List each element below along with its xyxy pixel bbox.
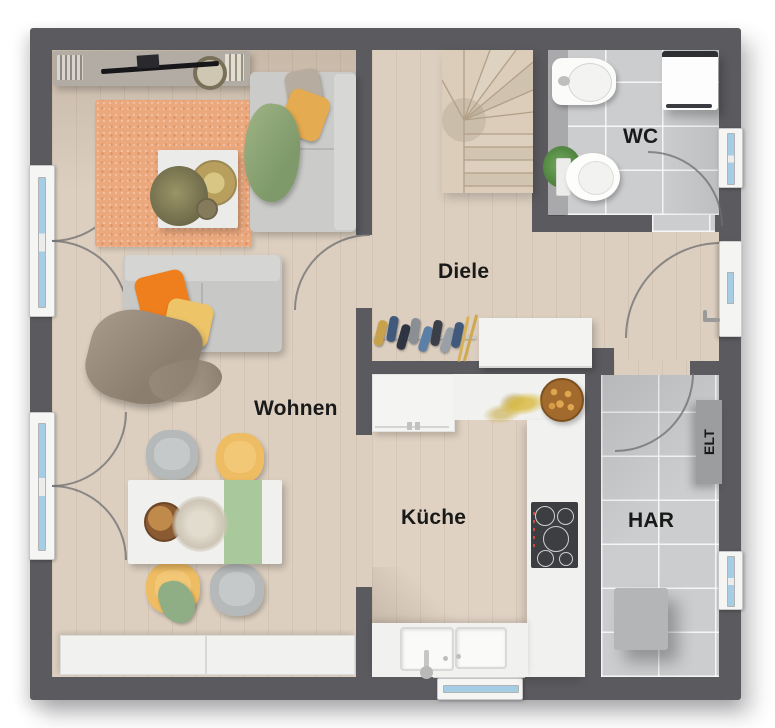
- toilet: [566, 153, 620, 201]
- door-glass: [727, 272, 734, 304]
- passage-wohnen-kueche: [356, 435, 372, 587]
- vase: [196, 198, 218, 220]
- sofa-backrest: [334, 74, 356, 230]
- room-label-diele: Diele: [438, 260, 489, 284]
- fruit-bowl: [540, 378, 584, 422]
- wall-stub: [592, 348, 614, 363]
- burner: [535, 506, 555, 526]
- window-wc: [718, 128, 743, 188]
- books: [225, 54, 244, 81]
- wardrobe: [479, 318, 592, 368]
- sideboard-top: [53, 51, 250, 86]
- sink-basin: [568, 63, 612, 102]
- chair-pad: [219, 572, 256, 605]
- dining-table: [128, 480, 282, 564]
- sink-knob: [443, 656, 448, 661]
- window-glass: [443, 685, 519, 693]
- cabinet-handle-line: [375, 426, 449, 428]
- staircase: [442, 50, 533, 193]
- cooktop-controls: [533, 512, 535, 552]
- entrance-door: [719, 241, 742, 337]
- chair-pad: [154, 438, 189, 470]
- window-har: [718, 551, 743, 610]
- coffee-table: [158, 150, 238, 228]
- window-glass: [38, 423, 46, 551]
- books: [57, 55, 83, 80]
- room-label-har: HAR: [628, 509, 674, 533]
- table-runner-green: [224, 480, 262, 564]
- window-glass: [727, 133, 735, 185]
- dining-chair-gray: [146, 430, 198, 480]
- sideboard-divider: [205, 636, 207, 674]
- cabinet-handle: [415, 422, 420, 430]
- elt-cabinet: ELT: [696, 400, 722, 484]
- room-label-elt: ELT: [701, 429, 717, 455]
- faucet: [558, 76, 570, 86]
- dried-flowers: [172, 496, 228, 552]
- burner: [537, 550, 554, 567]
- dining-chair-yellow: [216, 433, 264, 483]
- burner: [557, 508, 574, 525]
- sofa-main: [250, 72, 356, 232]
- faucet-base: [420, 666, 433, 679]
- room-label-kueche: Küche: [401, 506, 466, 530]
- kitchen-cabinet: [372, 374, 455, 432]
- sideboard-bottom: [60, 635, 355, 675]
- burner: [559, 552, 573, 566]
- sink-knob: [456, 654, 461, 659]
- door-handle: [703, 310, 707, 322]
- dining-chair-gray: [210, 564, 264, 616]
- sink-basin-right: [455, 627, 507, 669]
- washing-machine: [614, 588, 668, 650]
- window-glass: [38, 177, 46, 308]
- window-kueche: [437, 678, 523, 700]
- floorplan-canvas: ELT Wohnen Diele WC Küche HAR: [0, 0, 775, 728]
- toilet-bowl: [578, 161, 614, 195]
- sink: [552, 58, 616, 105]
- cooktop: [531, 502, 578, 568]
- burner: [543, 526, 569, 552]
- tv-box: [137, 54, 160, 69]
- boiler-vent: [666, 104, 712, 108]
- boiler: [662, 51, 718, 110]
- cabinet-handle: [407, 422, 412, 430]
- room-label-wc: WC: [623, 125, 658, 149]
- window-glass: [727, 556, 735, 607]
- chair-pad: [224, 441, 257, 473]
- room-label-wohnen: Wohnen: [254, 397, 338, 421]
